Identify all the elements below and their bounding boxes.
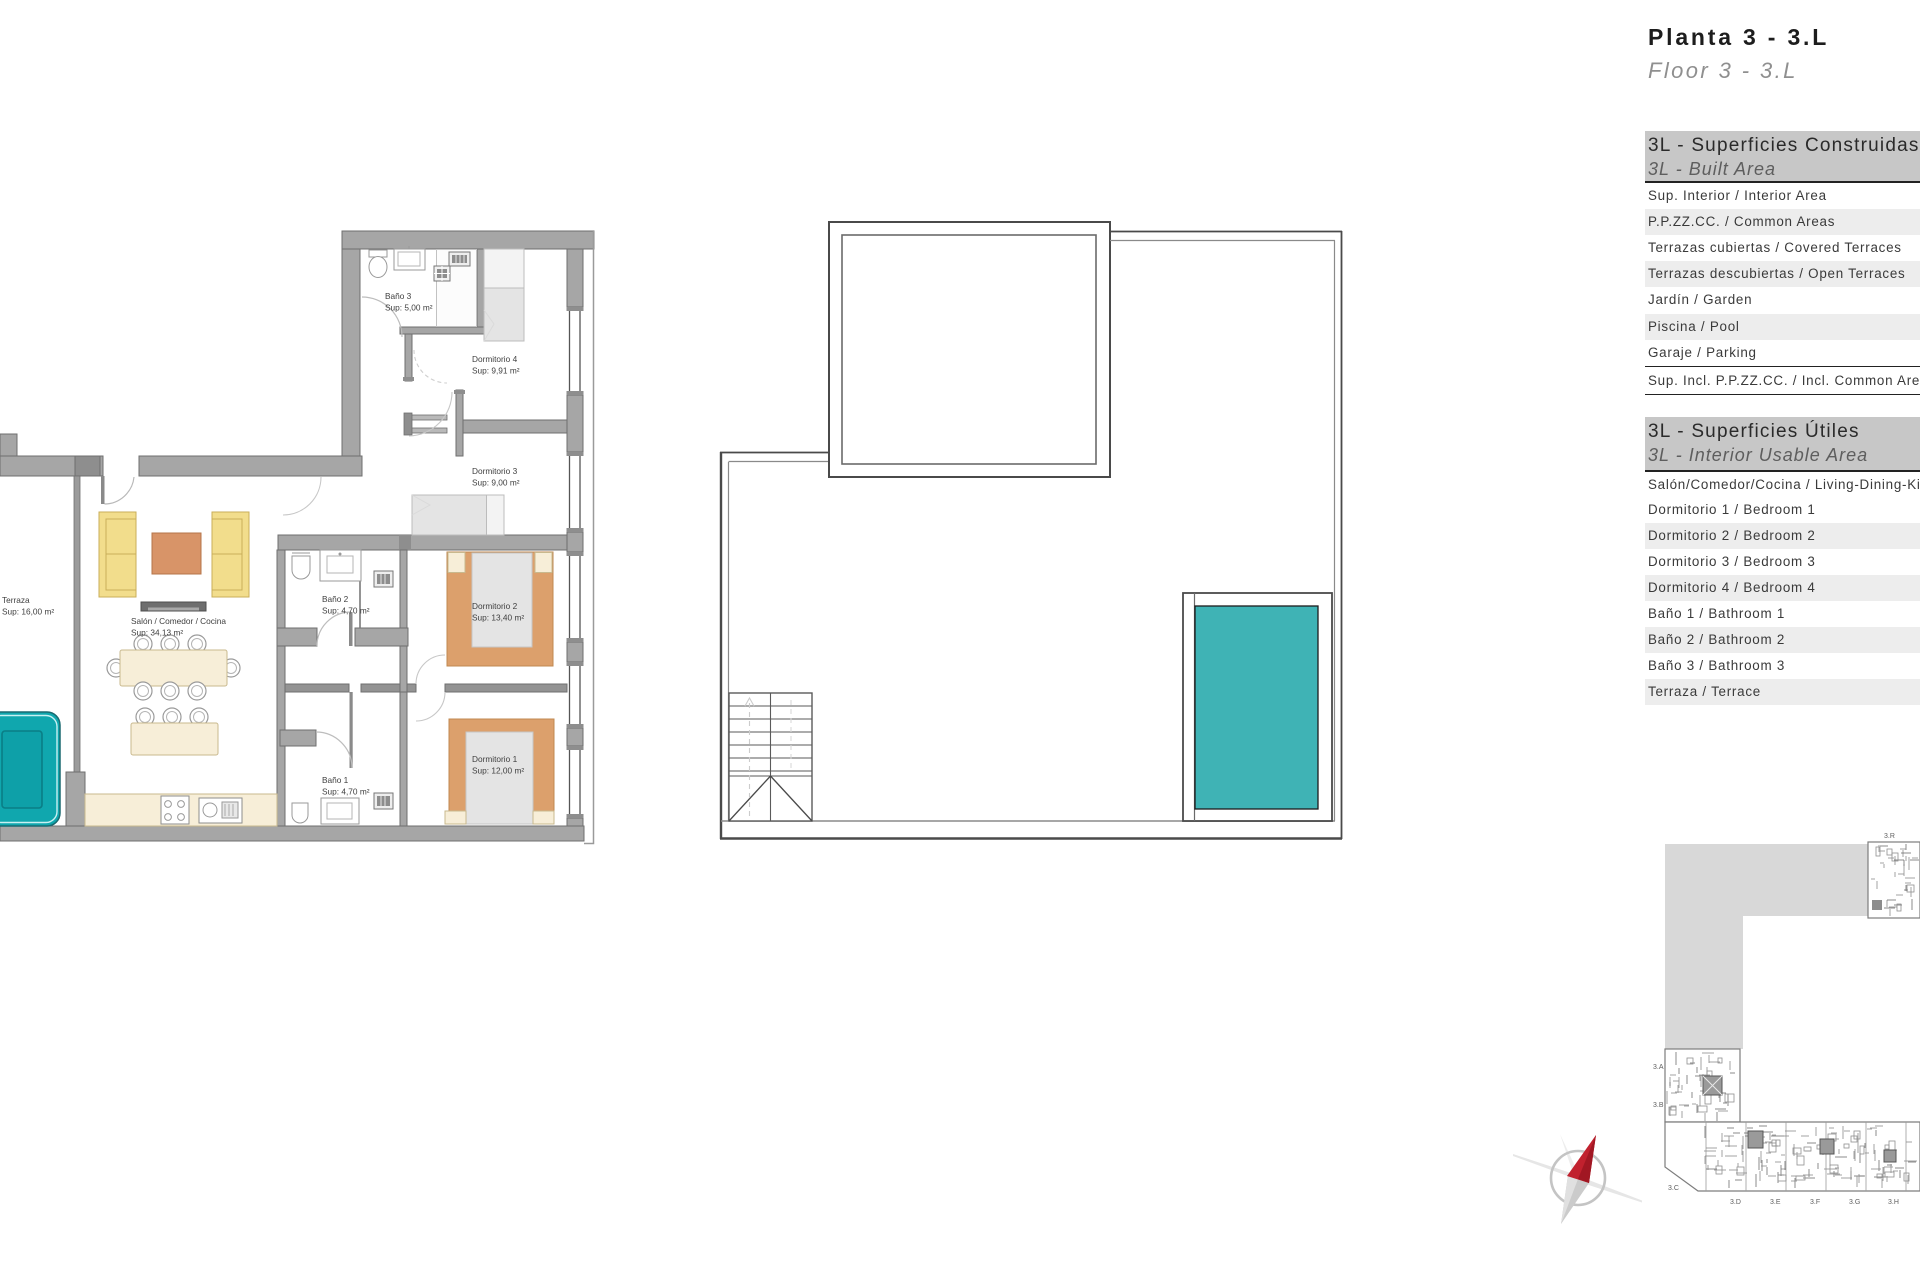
svg-text:3.D: 3.D bbox=[1730, 1199, 1741, 1206]
svg-text:Dormitorio 1: Dormitorio 1 bbox=[472, 754, 518, 764]
svg-text:Dormitorio 3: Dormitorio 3 bbox=[472, 466, 518, 476]
svg-text:Sup: 4,70 m²: Sup: 4,70 m² bbox=[322, 606, 370, 616]
svg-text:Baño 1: Baño 1 bbox=[322, 775, 349, 785]
svg-text:Sup: 16,00 m²: Sup: 16,00 m² bbox=[2, 607, 54, 617]
svg-text:Sup: 13,40 m²: Sup: 13,40 m² bbox=[472, 613, 524, 623]
svg-text:3.R: 3.R bbox=[1884, 833, 1895, 840]
svg-text:Terraza: Terraza bbox=[2, 595, 30, 605]
svg-text:3.A: 3.A bbox=[1653, 1064, 1664, 1071]
svg-text:Dormitorio 4: Dormitorio 4 bbox=[472, 354, 518, 364]
svg-text:Dormitorio 2: Dormitorio 2 bbox=[472, 601, 518, 611]
svg-text:3.H: 3.H bbox=[1888, 1199, 1899, 1206]
svg-text:Sup: 9,00 m²: Sup: 9,00 m² bbox=[472, 478, 520, 488]
svg-text:Sup: 4,70 m²: Sup: 4,70 m² bbox=[322, 787, 370, 797]
svg-text:Baño 2: Baño 2 bbox=[322, 594, 349, 604]
svg-text:Sup: 5,00 m²: Sup: 5,00 m² bbox=[385, 303, 433, 313]
svg-text:Sup: 9,91 m²: Sup: 9,91 m² bbox=[472, 366, 520, 376]
svg-text:Sup: 34,13 m²: Sup: 34,13 m² bbox=[131, 628, 183, 638]
svg-text:3.G: 3.G bbox=[1849, 1199, 1860, 1206]
svg-text:3.F: 3.F bbox=[1810, 1199, 1820, 1206]
svg-text:3.E: 3.E bbox=[1770, 1199, 1781, 1206]
svg-text:3.C: 3.C bbox=[1668, 1185, 1679, 1192]
svg-text:Sup: 12,00 m²: Sup: 12,00 m² bbox=[472, 766, 524, 776]
svg-text:Salón / Comedor / Cocina: Salón / Comedor / Cocina bbox=[131, 616, 226, 626]
svg-text:3.B: 3.B bbox=[1653, 1102, 1664, 1109]
svg-text:Baño 3: Baño 3 bbox=[385, 291, 412, 301]
